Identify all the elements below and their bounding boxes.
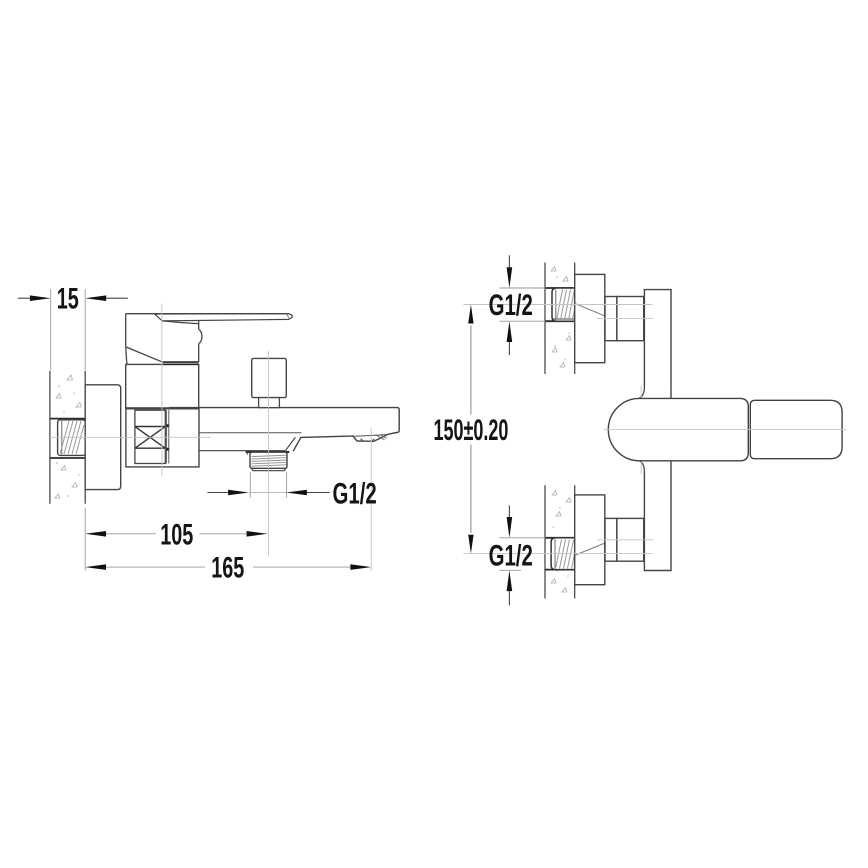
- svg-text:165: 165: [211, 551, 244, 584]
- svg-text:15: 15: [57, 283, 79, 316]
- svg-text:105: 105: [160, 518, 193, 551]
- svg-text:G1/2: G1/2: [332, 478, 376, 511]
- svg-text:G1/2: G1/2: [489, 289, 533, 322]
- svg-text:G1/2: G1/2: [489, 540, 533, 573]
- svg-text:150±0.20: 150±0.20: [433, 415, 508, 448]
